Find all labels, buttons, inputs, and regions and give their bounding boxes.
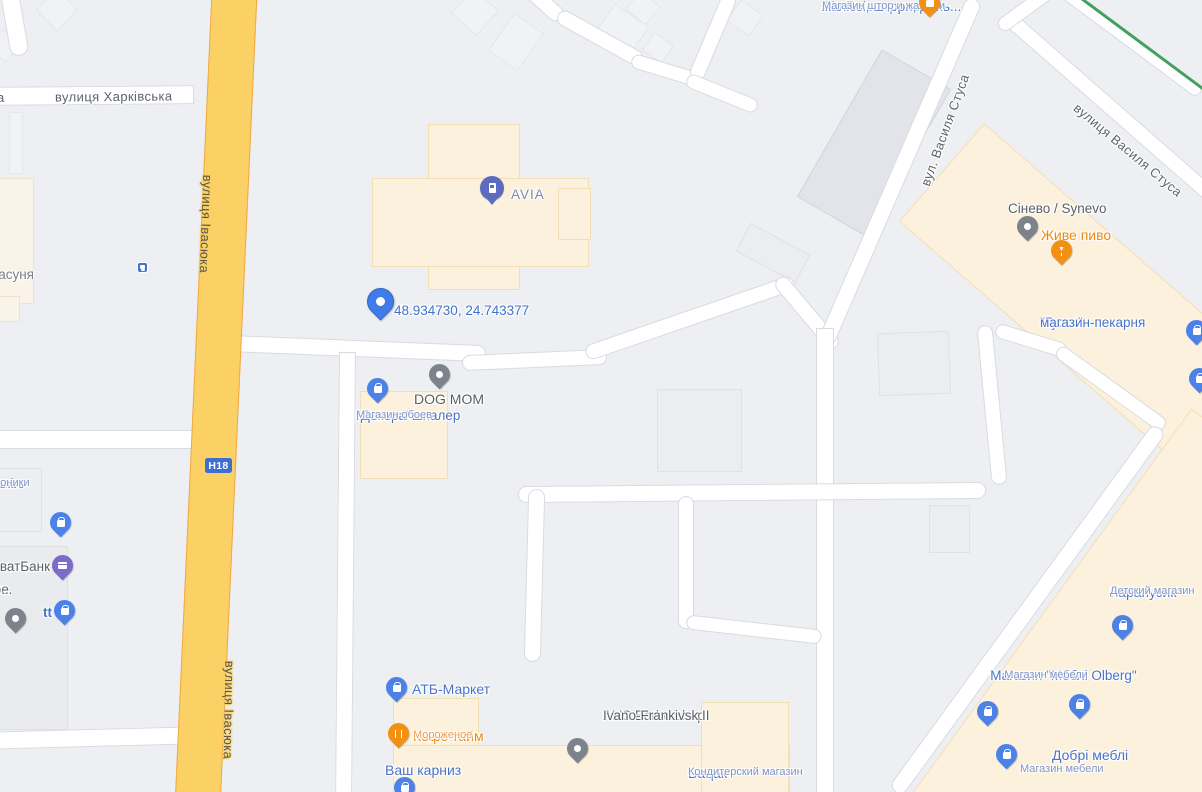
road [0,430,197,449]
road [335,352,356,792]
road [976,325,1007,486]
place-dot-icon [11,614,21,624]
zhyve-pin[interactable] [1047,236,1077,266]
building [877,331,951,396]
shopping-bag-icon [996,744,1017,765]
shopping-bag-icon [54,600,75,621]
poi-poshtove-line2: 5 (до... [0,583,12,598]
road [0,726,192,749]
bank-card-icon [52,555,73,576]
poi-husto-line2: магазин-пекарня [1040,316,1145,331]
street-label-fragment: а [0,90,5,105]
place-dot-icon [435,370,445,380]
building [451,0,499,36]
building [488,13,544,71]
road [686,614,823,644]
shopping-bag-icon [367,378,388,399]
poi-barbershop-line2: Ivano-Frankivsk II [603,709,710,724]
shopping-bag-icon [1189,368,1202,389]
poi-label-karnyz[interactable]: Ваш карниз [385,763,461,778]
avia-building [558,188,591,240]
place-dot-icon [573,744,583,754]
shopping-bag-icon [50,512,71,533]
poi-label-avia[interactable]: AVIA [511,188,545,203]
fuel-pump-icon [489,183,496,193]
building [929,505,970,553]
poi-label-atb[interactable]: АТБ-Маркет [412,682,490,697]
poi-dobri-name: Добрі меблі [1052,748,1128,763]
road [687,0,738,82]
street-label-ivasiuka-bottom: вулиця Івасюка [221,661,238,760]
building [657,389,742,472]
road [684,72,760,114]
map-canvas[interactable]: вулиця Харківська а вулиця Івасюка вулиц… [0,0,1202,792]
dimrolet-pin[interactable] [915,0,945,17]
shopping-bag-icon [1112,615,1133,636]
poi-label-dogmom[interactable]: DOG MOM [414,392,484,407]
shopping-bag-icon [919,0,940,13]
elektryka-pin[interactable] [46,508,76,538]
street-label-kharkivska: вулиця Харківська [55,88,173,104]
building [735,223,810,283]
poi-karapuzyk-sub: Детский магазин [1110,585,1194,598]
olberg-pin-right[interactable] [1065,690,1095,720]
route-badge-h18: Н18 [205,458,232,473]
dogmom-pin[interactable] [425,360,455,390]
building [36,0,78,31]
road [678,496,694,629]
road [583,275,796,362]
road-ivasiuka [174,0,258,792]
atb-pin[interactable] [382,673,412,703]
poi-label-privatbank[interactable]: ватБанк [0,560,50,575]
tt-pin[interactable] [50,596,80,626]
poi-dobri-sub: Магазин мебели [1020,763,1104,776]
dekora-pin[interactable] [363,374,393,404]
poi-label-krasunia[interactable]: асуня [0,268,34,283]
avia-building [432,182,516,263]
poi-vatsak-sub: Кондитерский магазин [688,766,803,779]
building [9,112,23,174]
karapuzyk-pin[interactable] [1108,611,1138,641]
poi-elektryka-sub: азин электроники [0,477,30,490]
shopping-bag-icon [394,777,415,792]
poi-label-tt[interactable]: tt [43,606,52,621]
shopping-cart-icon [1186,320,1202,341]
coordinates-label[interactable]: 48.934730, 24.743377 [394,304,529,319]
utensils-icon [388,723,409,744]
poi-label-olberg[interactable]: Магазин "Меблі Olberg" Магазин мебели [990,669,1074,682]
poi-label-synevo[interactable]: Сінево / Synevo [1008,202,1107,217]
building [0,296,20,322]
dobri-pin[interactable] [992,740,1022,770]
poi-kofe-sub: Мороженое [413,729,472,742]
kofe-pin[interactable] [384,719,414,749]
poi-dekora-sub: Магазин обоев [356,409,432,422]
marker-hole-icon [374,295,387,308]
road [518,482,986,503]
privatbank-pin[interactable] [48,551,78,581]
road [524,489,546,662]
place-dot-icon [1023,222,1033,232]
poi-label-dobri[interactable]: Добрі меблі Магазин мебели [1020,748,1096,763]
bus-stop-icon[interactable] [137,262,148,273]
avia-gas-station-pin[interactable] [480,176,504,200]
road [816,328,834,792]
building [0,178,34,304]
olberg-pin-left[interactable] [973,697,1003,727]
poi-olberg-sub: Магазин мебели [1004,669,1088,682]
cocktail-icon [1051,240,1072,261]
shopping-bag-icon [977,701,998,722]
shopping-cart-icon [386,677,407,698]
shopping-bag-icon [1069,694,1090,715]
